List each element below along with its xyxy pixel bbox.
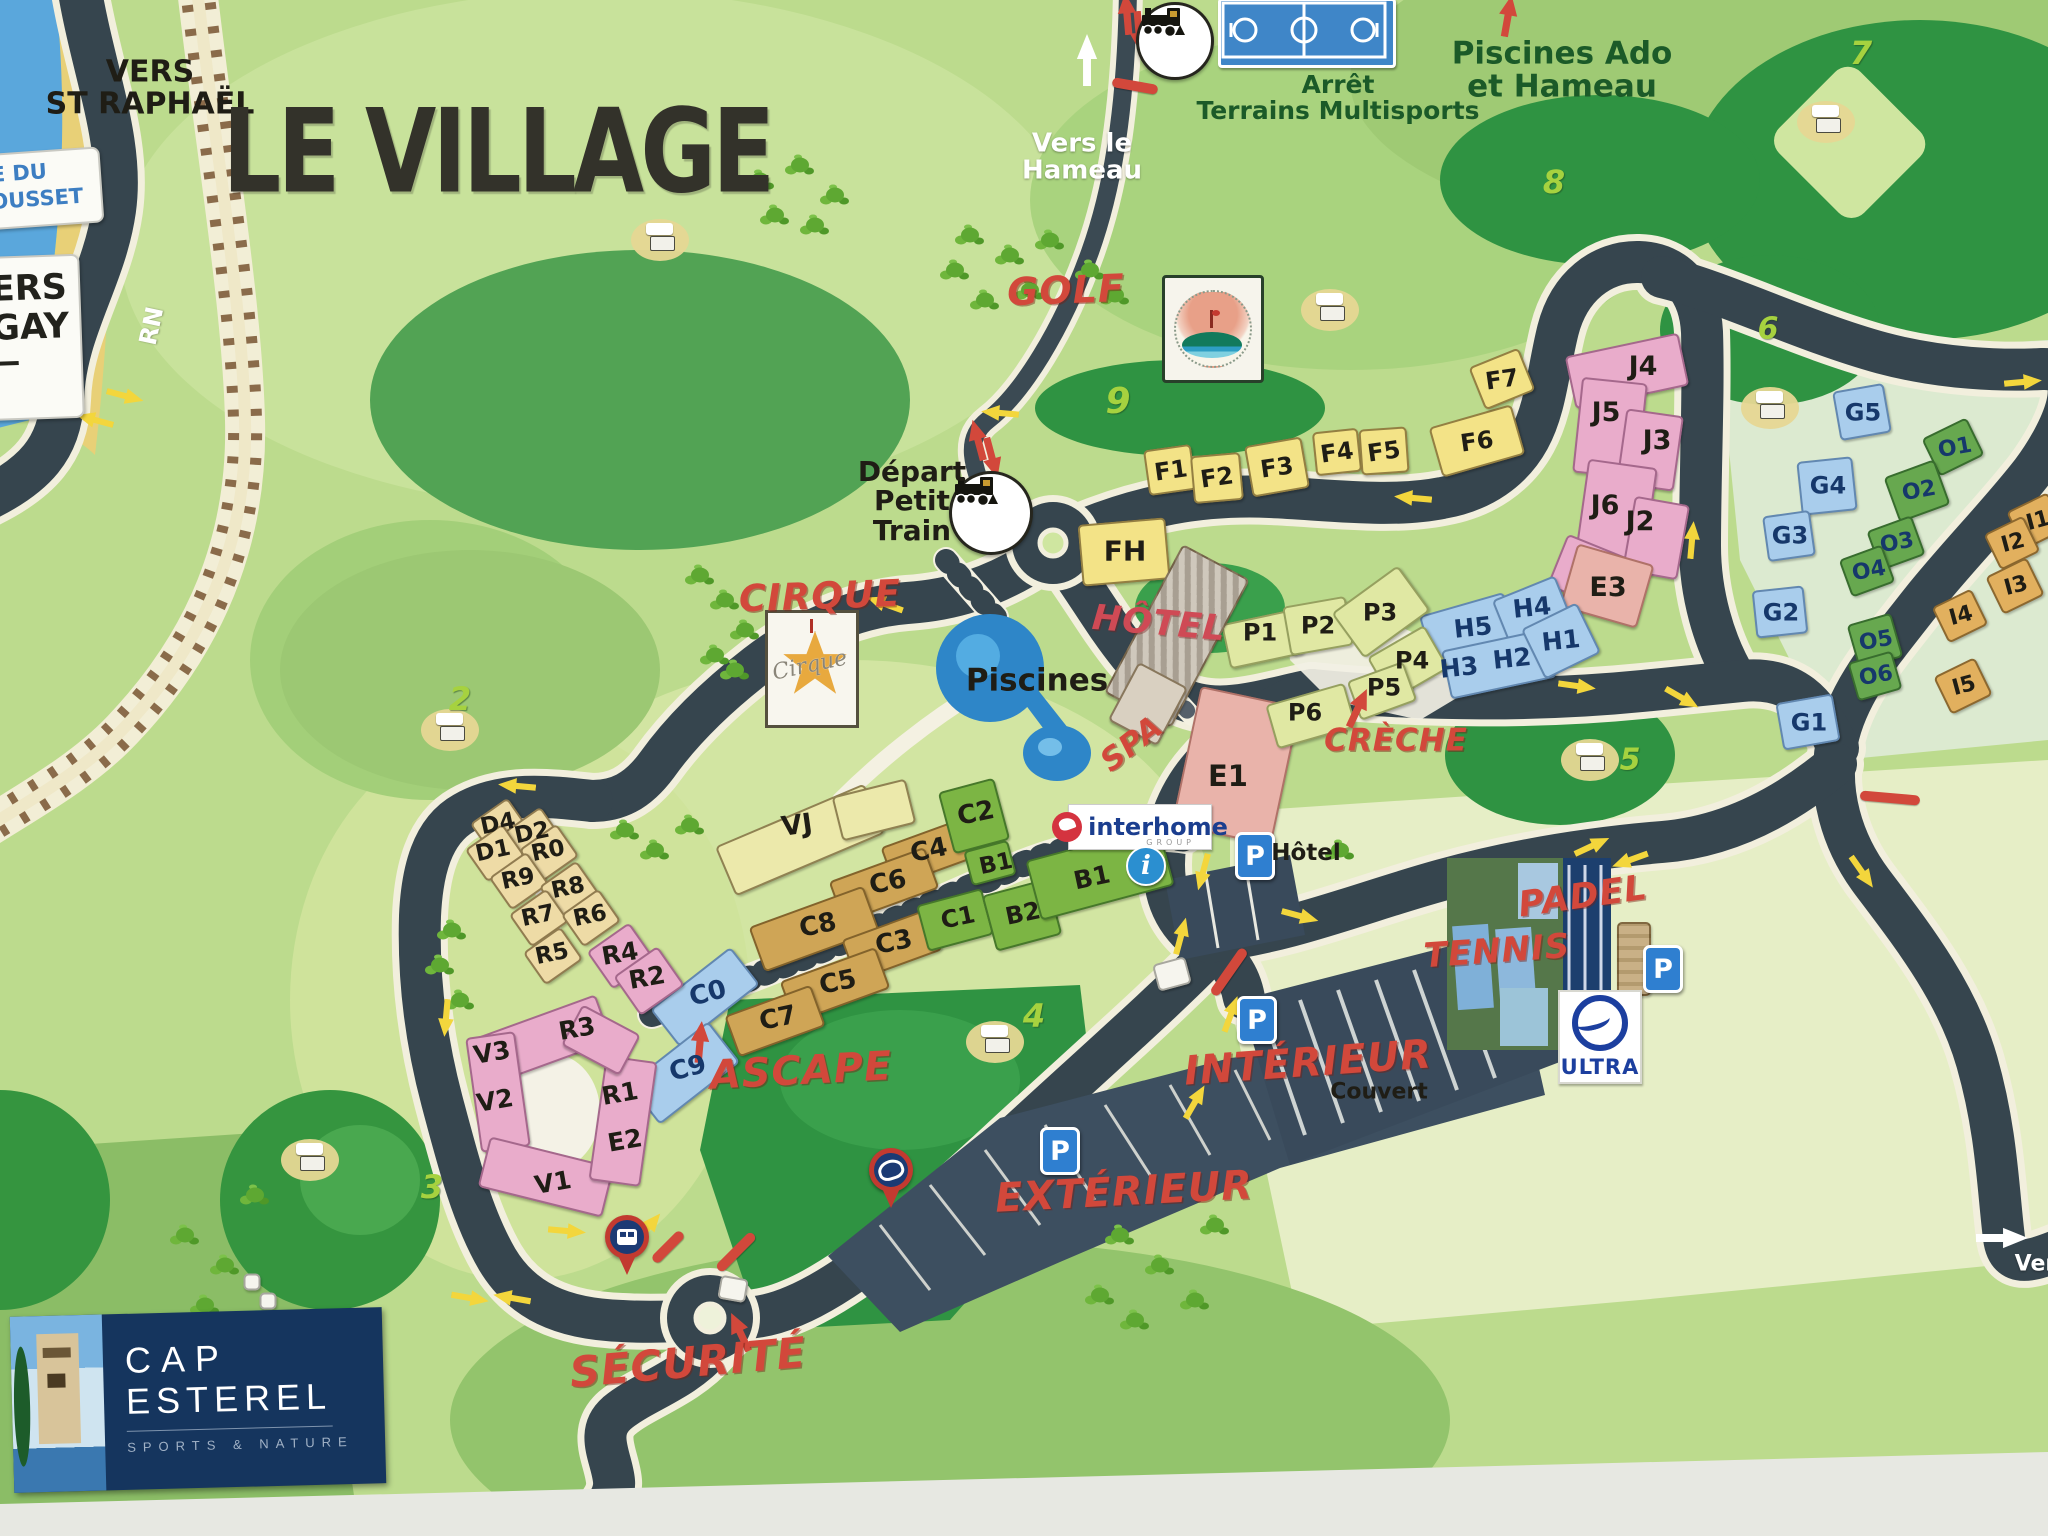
coast-road-sign: E DU RROUSSET	[0, 146, 104, 233]
interhome-logo: interhome GROUP	[1068, 804, 1212, 850]
interhome-group-text: GROUP	[1146, 838, 1195, 847]
coast-sign-text: E DU RROUSSET	[0, 159, 84, 216]
multisport-court-icon	[1218, 0, 1396, 68]
left-arrow-icon	[0, 358, 19, 370]
vers-agay-sign: VERS AGAY	[0, 254, 85, 422]
info-point-icon: i	[1126, 846, 1166, 886]
map-base	[0, 0, 2048, 1536]
golf-logo-emblem	[1174, 290, 1252, 368]
cap-esterel-tower-image	[10, 1314, 107, 1492]
cap-esterel-line1: CAP	[124, 1333, 383, 1381]
cap-esterel-tagline: SPORTS & NATURE	[127, 1433, 385, 1455]
cap-esterel-logo: CAP ESTEREL SPORTS & NATURE	[10, 1307, 386, 1493]
vers-agay-text: VERS AGAY	[0, 267, 70, 349]
golf-club-logo	[1162, 275, 1264, 383]
resort-map: PPPP E DU RROUSSET VERS AGAY Cirque inte…	[0, 0, 2048, 1536]
cirque-logo: Cirque	[765, 610, 859, 728]
interhome-logo-text: interhome	[1088, 815, 1228, 839]
ultra-logo-text: ULTRA	[1561, 1055, 1640, 1079]
info-letter: i	[1141, 851, 1151, 881]
cap-esterel-line2: ESTEREL	[125, 1376, 332, 1432]
interhome-bird-icon	[1052, 812, 1082, 842]
ultra-padel-logo: ULTRA	[1558, 990, 1642, 1084]
ultra-ball-icon	[1572, 995, 1628, 1051]
